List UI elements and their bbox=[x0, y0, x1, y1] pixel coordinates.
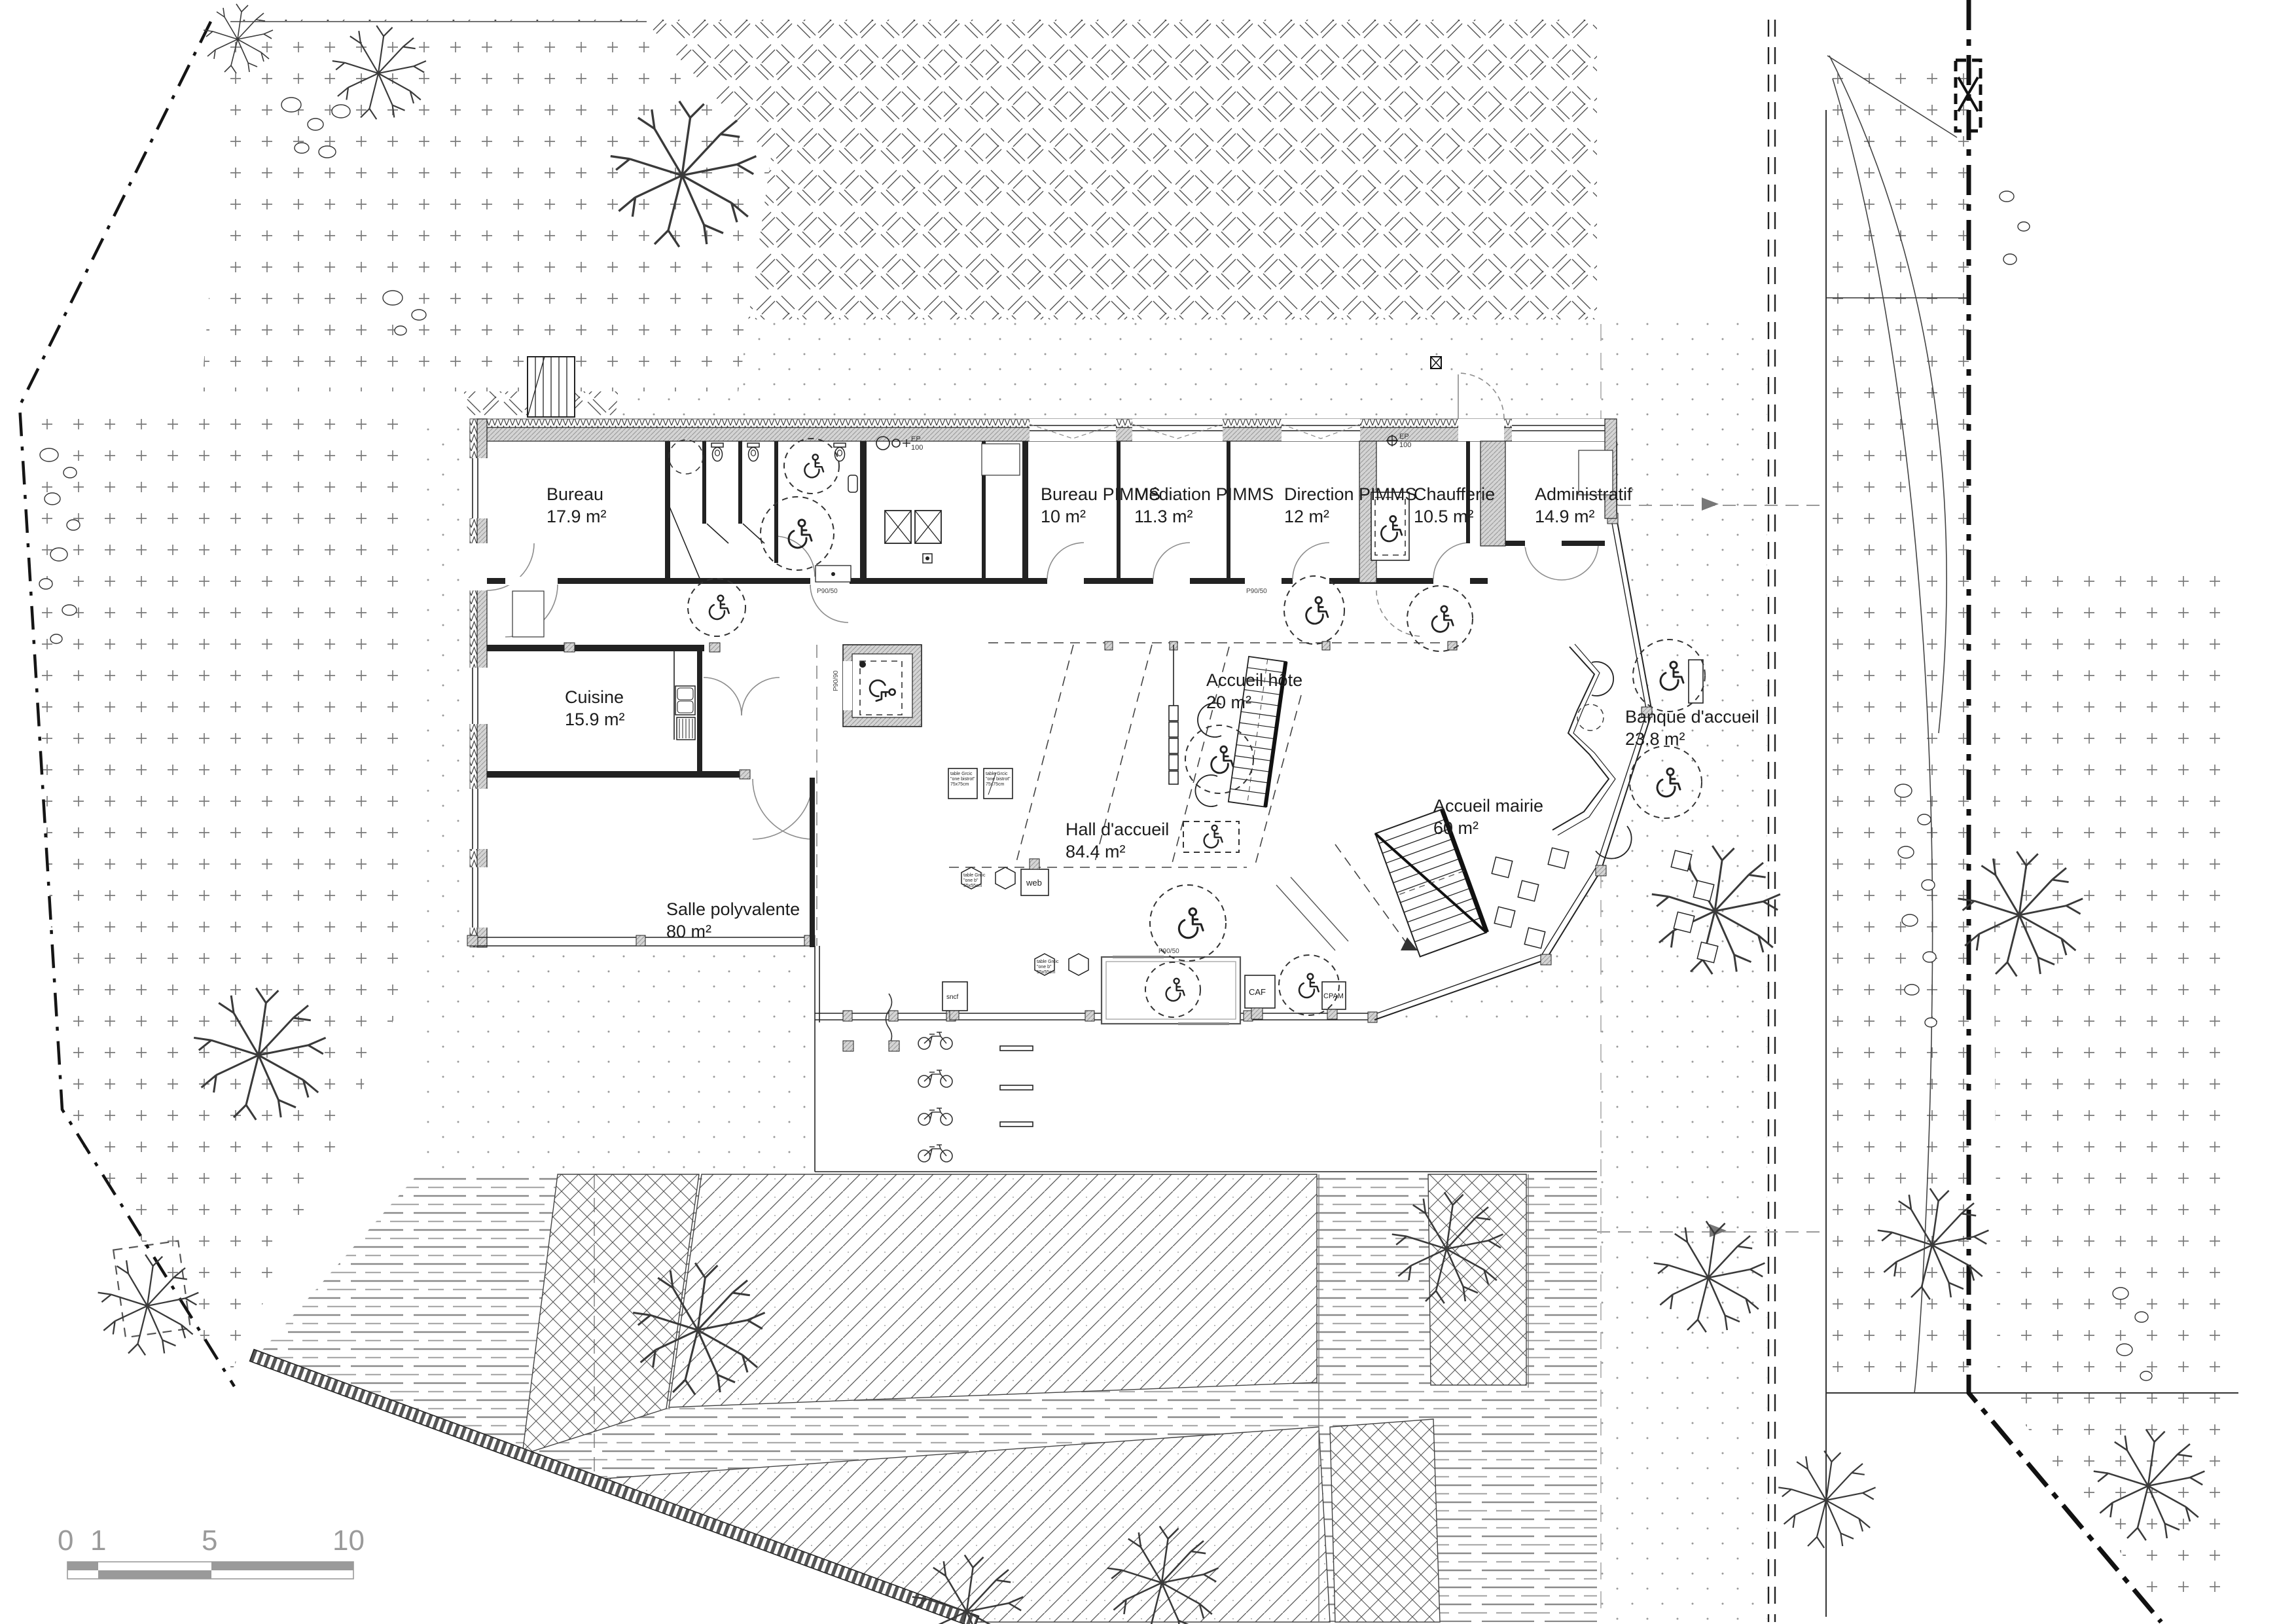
svg-text:"one bistrot": "one bistrot" bbox=[950, 777, 975, 782]
bed-crosshatch-3 bbox=[1330, 1419, 1440, 1622]
svg-text:table Grcic: table Grcic bbox=[950, 772, 973, 776]
room-label-accueil-hote: Accueil hôte bbox=[1206, 670, 1302, 690]
room-label-administratif: Administratif bbox=[1535, 484, 1632, 504]
ep-label: EP bbox=[911, 435, 921, 443]
room-label-cuisine: Cuisine bbox=[565, 687, 624, 707]
room-area-administratif: 14.9 m² bbox=[1535, 507, 1595, 526]
svg-text:"one bistrot": "one bistrot" bbox=[986, 777, 1011, 782]
ep-size-label: 100 bbox=[911, 444, 923, 452]
room-label-hall-accueil: Hall d'accueil bbox=[1066, 820, 1169, 839]
room-label-accueil-mairie: Accueil mairie bbox=[1433, 796, 1543, 816]
door-tag: P90/50 bbox=[817, 588, 838, 595]
svg-text:55x55cm: 55x55cm bbox=[1037, 970, 1056, 975]
caf-label: CAF bbox=[1249, 987, 1266, 997]
washbasin-icon bbox=[848, 475, 857, 492]
sncf-label: sncf bbox=[946, 994, 959, 1001]
sink-icon bbox=[675, 686, 695, 715]
room-label-mediation-pimms: Médiation PIMMS bbox=[1134, 484, 1274, 504]
svg-text:"one b": "one b" bbox=[963, 878, 978, 883]
room-label-chaufferie: Chaufferie bbox=[1414, 484, 1495, 504]
room-area-accueil-mairie: 60 m² bbox=[1433, 818, 1479, 838]
svg-text:table Grcic: table Grcic bbox=[986, 772, 1008, 776]
svg-text:"one b": "one b" bbox=[1037, 965, 1052, 969]
room-area-mediation-pimms: 11.3 m² bbox=[1134, 507, 1193, 526]
dotted-strip-top bbox=[615, 319, 1597, 420]
tree-icon bbox=[1778, 1451, 1875, 1547]
room-area-banque-accueil: 23.8 m² bbox=[1625, 729, 1685, 749]
room-area-direction-pimms: 12 m² bbox=[1284, 507, 1329, 526]
door-tag: P90/50 bbox=[1246, 588, 1267, 595]
ep-size-label: 100 bbox=[1399, 441, 1411, 449]
floor-plan-svg: EP 100 EP 100 P90/90 bbox=[0, 0, 2296, 1624]
cpam-label: CPAM bbox=[1323, 992, 1344, 1000]
svg-text:75x75cm: 75x75cm bbox=[986, 782, 1005, 787]
scale-tick-5: 5 bbox=[202, 1525, 217, 1557]
bed-crosshatch-2 bbox=[1428, 1174, 1526, 1385]
ep-label: EP bbox=[1399, 433, 1409, 441]
svg-text:table Grcic: table Grcic bbox=[1037, 960, 1059, 964]
room-area-hall-accueil: 84.4 m² bbox=[1066, 842, 1126, 861]
bistrot-table-2: table Grcic "one bistrot" 75x75cm bbox=[984, 768, 1013, 799]
grass-far-right bbox=[1991, 563, 2238, 1607]
sideboard bbox=[512, 591, 544, 637]
room-label-direction-pimms: Direction PIMMS bbox=[1284, 484, 1417, 504]
room-label-bureau: Bureau bbox=[547, 484, 603, 504]
door-tag: P90/50 bbox=[1158, 948, 1179, 955]
bistrot-table-1: table Grcic "one bistrot" 75x75cm bbox=[948, 768, 977, 799]
room-area-cuisine: 15.9 m² bbox=[565, 710, 625, 729]
svg-text:table Grcic: table Grcic bbox=[963, 873, 986, 878]
grass-top-left bbox=[202, 21, 771, 391]
room-area-bureau: 17.9 m² bbox=[547, 507, 607, 526]
room-area-chaufferie: 10.5 m² bbox=[1414, 507, 1474, 526]
scale-tick-1: 1 bbox=[90, 1525, 106, 1557]
grass-left bbox=[25, 411, 411, 1380]
scale-tick-10: 10 bbox=[332, 1525, 365, 1557]
svg-text:75x75cm: 75x75cm bbox=[950, 782, 969, 787]
room-area-accueil-hote: 20 m² bbox=[1206, 693, 1251, 712]
floor-plan-sheet: EP 100 EP 100 P90/90 bbox=[0, 0, 2296, 1624]
toilet-icon bbox=[747, 443, 759, 461]
room-area-bureau-pimms: 10 m² bbox=[1041, 507, 1086, 526]
web-label: web bbox=[1026, 878, 1042, 888]
scale-tick-0: 0 bbox=[58, 1525, 73, 1557]
room-area-salle-polyvalente: 80 m² bbox=[666, 922, 711, 941]
entrance-sas bbox=[1102, 957, 1240, 1024]
toilet-icon bbox=[711, 443, 723, 461]
mail-slot-icon bbox=[1431, 357, 1441, 369]
elevator: P90/90 bbox=[833, 645, 922, 727]
exterior-stair bbox=[528, 357, 575, 417]
door-tag: P90/90 bbox=[833, 670, 840, 691]
room-label-banque-accueil: Banque d'accueil bbox=[1625, 707, 1759, 727]
svg-text:55x55cm: 55x55cm bbox=[963, 884, 982, 888]
room-label-salle-polyvalente: Salle polyvalente bbox=[666, 899, 800, 919]
bed-hatch-1 bbox=[669, 1174, 1317, 1407]
